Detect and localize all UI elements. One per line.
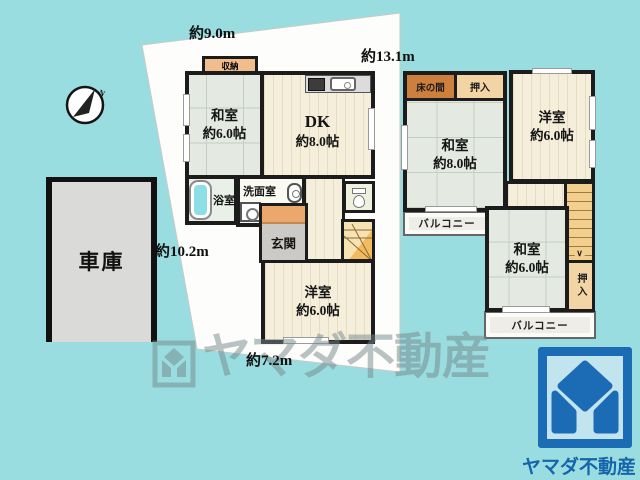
room-label: 和室 約6.0帖 (203, 107, 247, 142)
entrance-label: 玄関 (271, 233, 296, 252)
room-washitsu-1f: 和室 約6.0帖 (185, 71, 264, 179)
room-name: 和室 (203, 107, 247, 125)
balcony-label: バルコニー (418, 216, 475, 231)
closet-top: 押入 (457, 75, 503, 101)
bathtub-icon (189, 180, 212, 220)
washroom-label: 洗面室 (243, 183, 276, 199)
window-marker (502, 306, 550, 313)
window-marker (401, 125, 408, 170)
toilet-bowl-icon (353, 195, 365, 208)
room-label: 洋室 約6.0帖 (530, 109, 574, 144)
window-marker (183, 94, 190, 126)
room-washitsu6-2f: 和室 約6.0帖 (485, 206, 569, 312)
window-marker (283, 337, 329, 344)
room-yoshitsu-1f: 洋室 約6.0帖 (261, 259, 375, 344)
closet-label: 押入 (470, 79, 490, 94)
room-size: 約6.0帖 (505, 259, 549, 277)
balcony-2f-bottom: バルコニー (484, 311, 596, 339)
entrance-step (262, 206, 305, 224)
tatami-area: 和室 約8.0帖 (407, 101, 503, 208)
brand-name: ヤマダ不動産 (518, 452, 640, 479)
storage-label: 収納 (221, 60, 238, 72)
washroom-sink-icon (287, 183, 302, 203)
stove-icon (308, 78, 325, 91)
room-size: 約6.0帖 (203, 125, 247, 143)
room-name: DK (296, 111, 340, 133)
window-marker (589, 96, 596, 130)
room-size: 約8.0帖 (296, 133, 340, 151)
tokonoma-label: 床の間 (416, 80, 445, 94)
brand-logo-y-icon (547, 356, 623, 439)
floor-plan-canvas: N 車庫 収納 和室 約6.0帖 DK 約8.0帖 浴室 洗面室 玄関 (0, 0, 640, 480)
dimension-top: 約9.0m (189, 22, 235, 43)
entrance-genkan: 玄関 (259, 203, 308, 263)
window-marker (368, 108, 375, 150)
brand-logo (538, 347, 632, 448)
window-marker (425, 206, 477, 212)
stairs-1f (341, 219, 375, 264)
bath-label: 浴室 (213, 192, 235, 208)
room-size: 約6.0帖 (296, 302, 340, 320)
garage-area: 車庫 (46, 177, 157, 342)
room-name: 洋室 (530, 109, 574, 127)
window-marker (589, 140, 596, 168)
room-name: 和室 (433, 137, 477, 155)
balcony-2f-left: バルコニー (403, 211, 491, 236)
dimension-bottom: 約7.2m (246, 349, 292, 370)
room-label: DK 約8.0帖 (296, 111, 340, 151)
washing-machine-icon (240, 202, 261, 222)
hallway-1f (303, 175, 345, 264)
garage-label: 車庫 (52, 246, 151, 276)
closet-label: 押入 (573, 273, 588, 299)
kitchen-sink-icon (330, 77, 356, 91)
dimension-left: 約10.2m (155, 240, 209, 261)
room-name: 和室 (505, 241, 549, 259)
room-yoshitsu-2f: 洋室 約6.0帖 (509, 70, 595, 183)
closet-right-2f: 押入 (566, 260, 595, 312)
balcony-label: バルコニー (511, 318, 568, 333)
room-washitsu8-2f: 床の間 押入 和室 約8.0帖 (403, 71, 507, 212)
dimension-right: 約13.1m (361, 45, 415, 66)
window-marker (532, 68, 572, 74)
room-label: 洋室 約6.0帖 (296, 284, 340, 319)
room-name: 洋室 (296, 284, 340, 302)
room-size: 約8.0帖 (433, 155, 477, 173)
tokonoma-alcove: 床の間 (407, 75, 457, 101)
compass-north-icon: N (64, 82, 110, 128)
room-size: 約6.0帖 (530, 127, 574, 145)
room-label: 和室 約6.0帖 (505, 241, 549, 276)
toilet-tank-icon (352, 188, 366, 194)
alcove-row: 床の間 押入 (407, 75, 503, 101)
window-marker (183, 134, 190, 162)
stairs-fan-icon (344, 222, 372, 261)
stairs-down-arrow-icon: ∨ (574, 248, 585, 259)
entrance-floor: 玄関 (262, 224, 305, 260)
room-label: 和室 約8.0帖 (433, 137, 477, 172)
